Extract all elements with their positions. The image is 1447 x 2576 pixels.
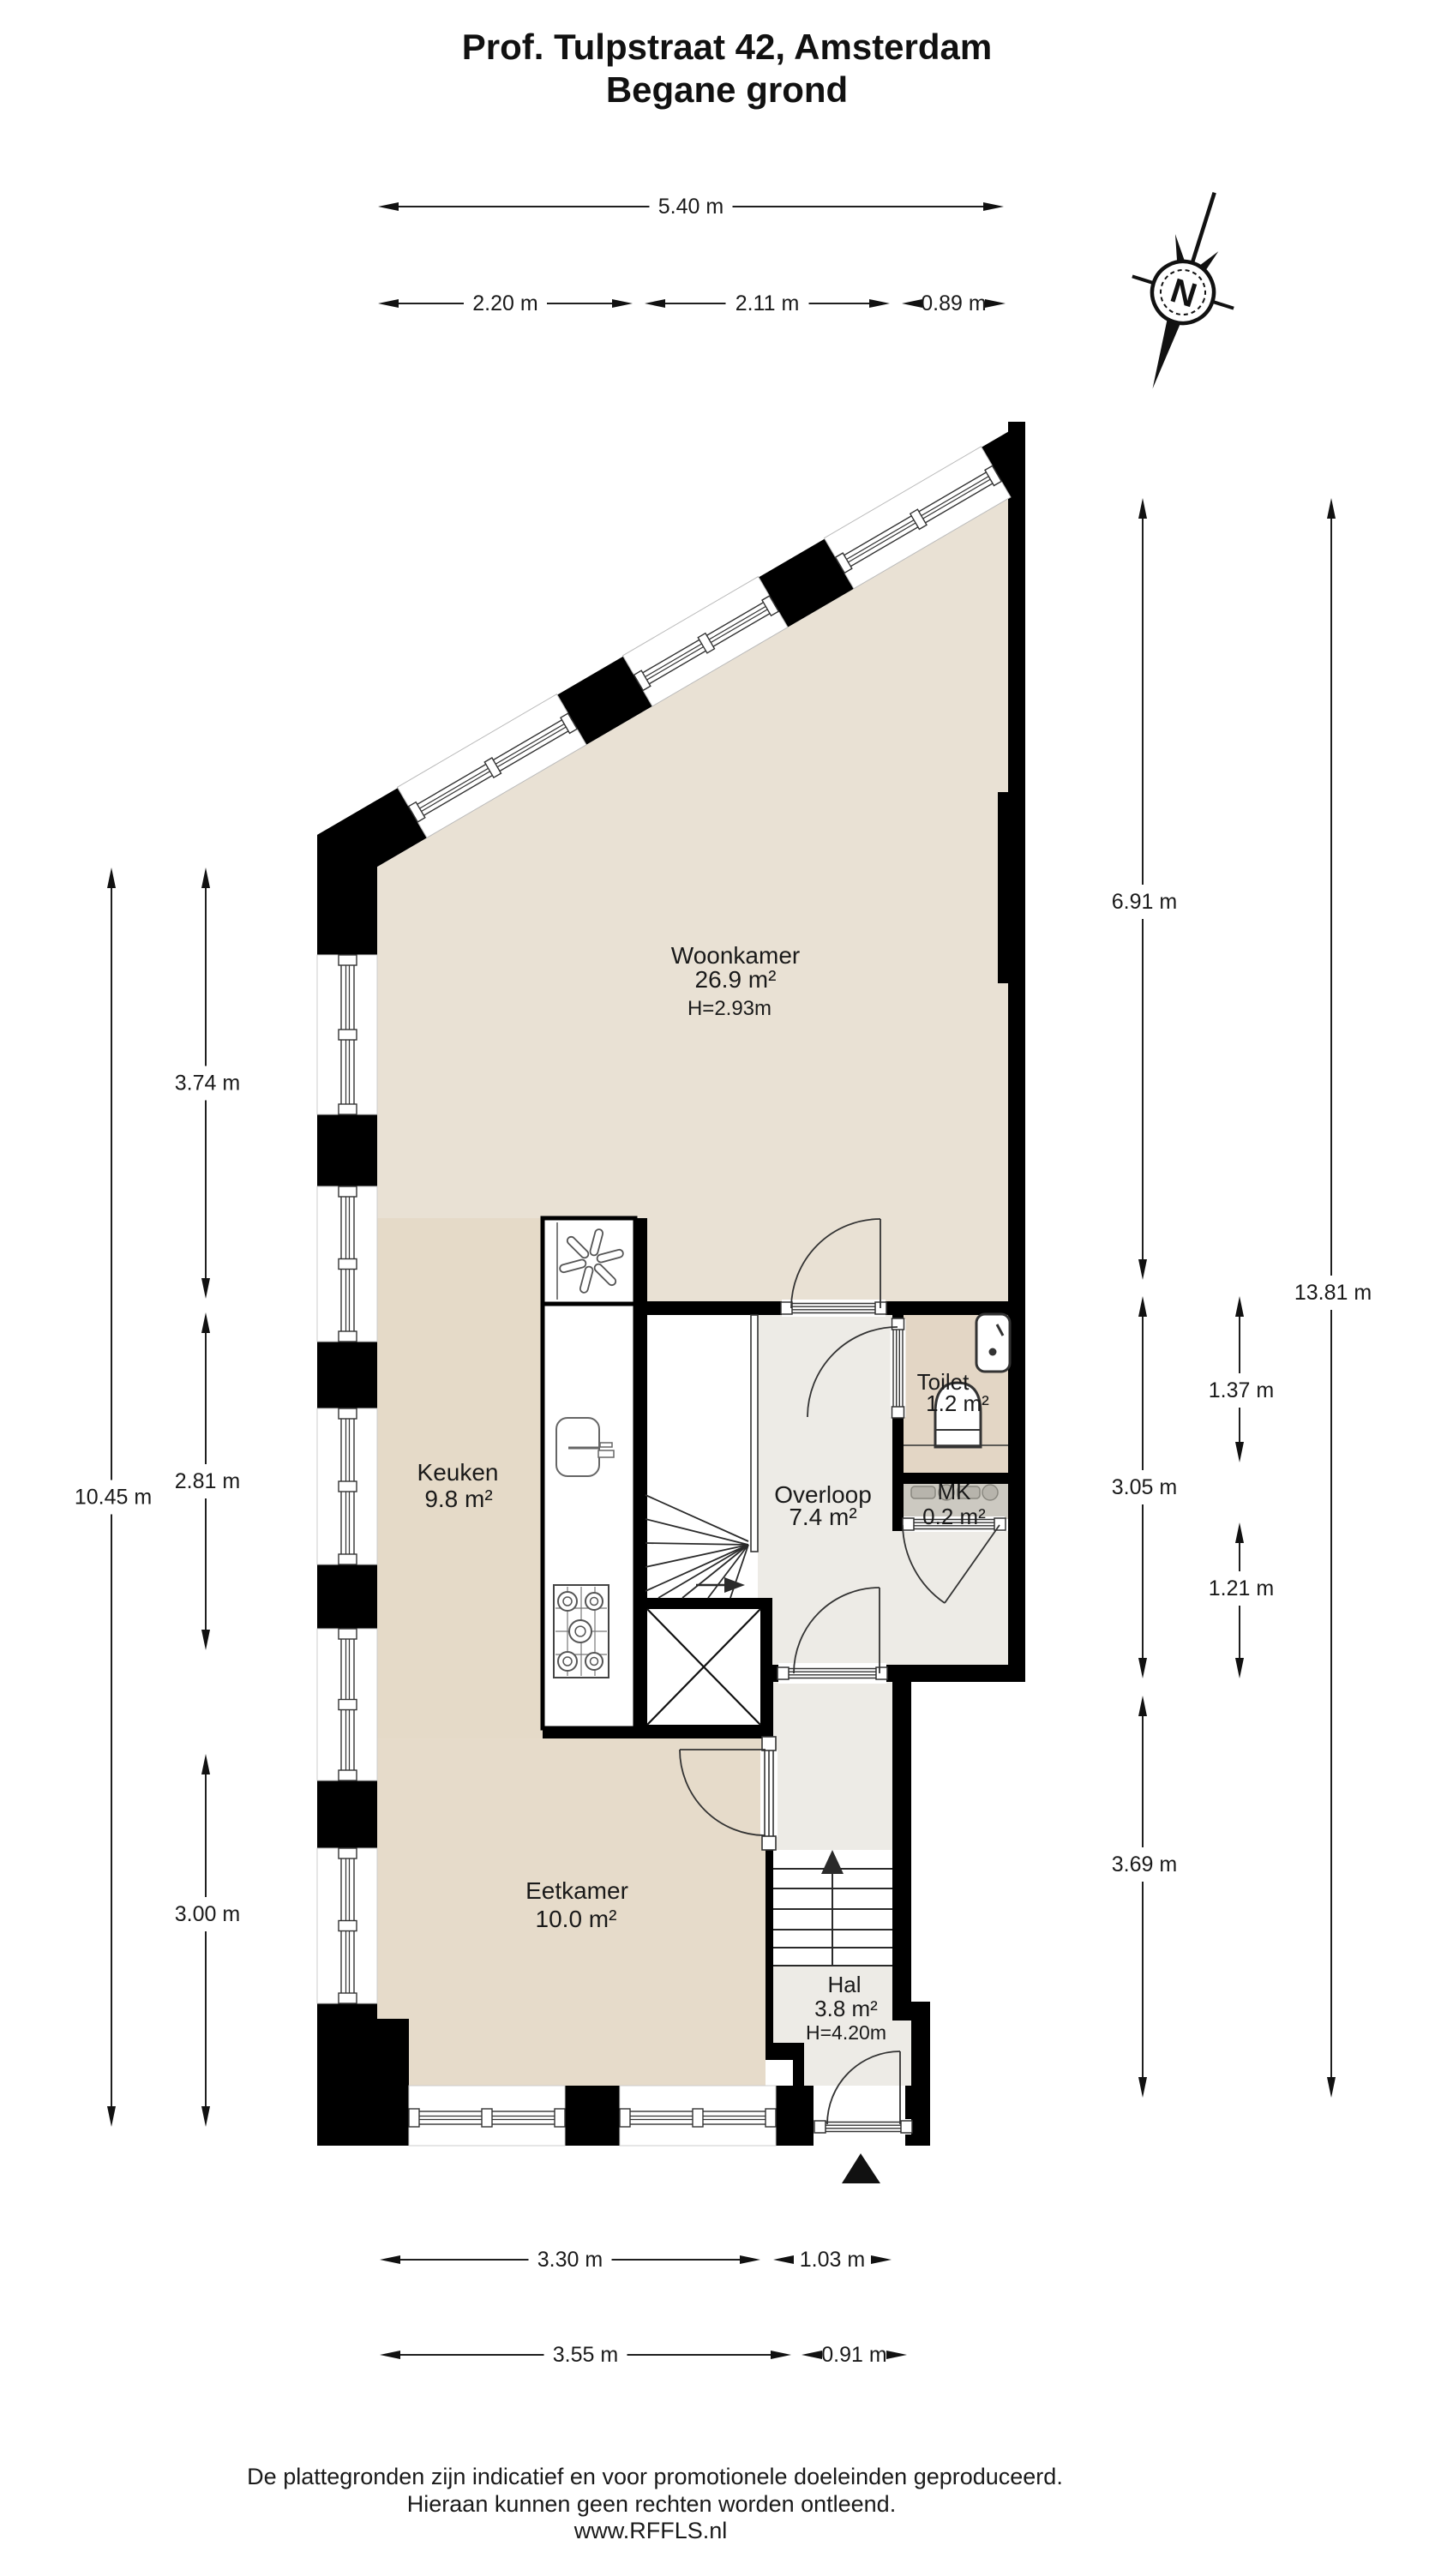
- svg-text:2.11 m: 2.11 m: [736, 291, 800, 315]
- svg-text:Begane grond: Begane grond: [606, 69, 848, 110]
- svg-text:5.40 m: 5.40 m: [658, 195, 723, 219]
- svg-text:H=4.20m: H=4.20m: [806, 2021, 886, 2044]
- svg-text:3.05 m: 3.05 m: [1112, 1475, 1177, 1499]
- svg-text:1.21 m: 1.21 m: [1209, 1576, 1274, 1600]
- svg-text:Hieraan kunnen geen rechten wo: Hieraan kunnen geen rechten worden ontle…: [407, 2491, 896, 2517]
- svg-text:1.2 m²: 1.2 m²: [926, 1390, 989, 1416]
- svg-text:1.37 m: 1.37 m: [1209, 1378, 1274, 1402]
- svg-text:Woonkamer: Woonkamer: [671, 942, 800, 969]
- svg-text:3.74 m: 3.74 m: [175, 1072, 240, 1096]
- svg-text:Prof. Tulpstraat 42, Amsterdam: Prof. Tulpstraat 42, Amsterdam: [462, 27, 993, 67]
- svg-text:7.4 m²: 7.4 m²: [789, 1504, 856, 1530]
- svg-text:26.9 m²: 26.9 m²: [695, 966, 777, 993]
- svg-text:H=2.93m: H=2.93m: [687, 997, 772, 1020]
- svg-text:2.20 m: 2.20 m: [472, 291, 537, 315]
- svg-text:3.00 m: 3.00 m: [175, 1902, 240, 1926]
- svg-text:Keuken: Keuken: [417, 1459, 499, 1486]
- svg-text:0.89 m: 0.89 m: [921, 291, 986, 315]
- svg-text:Eetkamer: Eetkamer: [525, 1877, 628, 1904]
- svg-text:www.RFFLS.nl: www.RFFLS.nl: [573, 2518, 728, 2543]
- svg-text:3.55 m: 3.55 m: [553, 2343, 618, 2367]
- svg-text:3.69 m: 3.69 m: [1112, 1852, 1177, 1876]
- svg-text:3.30 m: 3.30 m: [537, 2248, 603, 2272]
- svg-text:10.45 m: 10.45 m: [75, 1486, 152, 1510]
- svg-text:1.03 m: 1.03 m: [800, 2248, 865, 2272]
- svg-text:2.81 m: 2.81 m: [175, 1469, 240, 1493]
- svg-text:13.81 m: 13.81 m: [1294, 1281, 1372, 1305]
- svg-text:0.2 m²: 0.2 m²: [922, 1504, 986, 1529]
- svg-text:0.91 m: 0.91 m: [821, 2343, 886, 2367]
- svg-text:3.8 m²: 3.8 m²: [814, 1996, 878, 2021]
- svg-text:Hal: Hal: [827, 1972, 861, 1997]
- svg-text:9.8 m²: 9.8 m²: [424, 1486, 492, 1512]
- svg-text:6.91 m: 6.91 m: [1112, 890, 1177, 914]
- svg-text:De plattegronden zijn indicati: De plattegronden zijn indicatief en voor…: [247, 2464, 1063, 2489]
- svg-text:MK: MK: [938, 1479, 972, 1504]
- svg-text:10.0 m²: 10.0 m²: [536, 1906, 617, 1932]
